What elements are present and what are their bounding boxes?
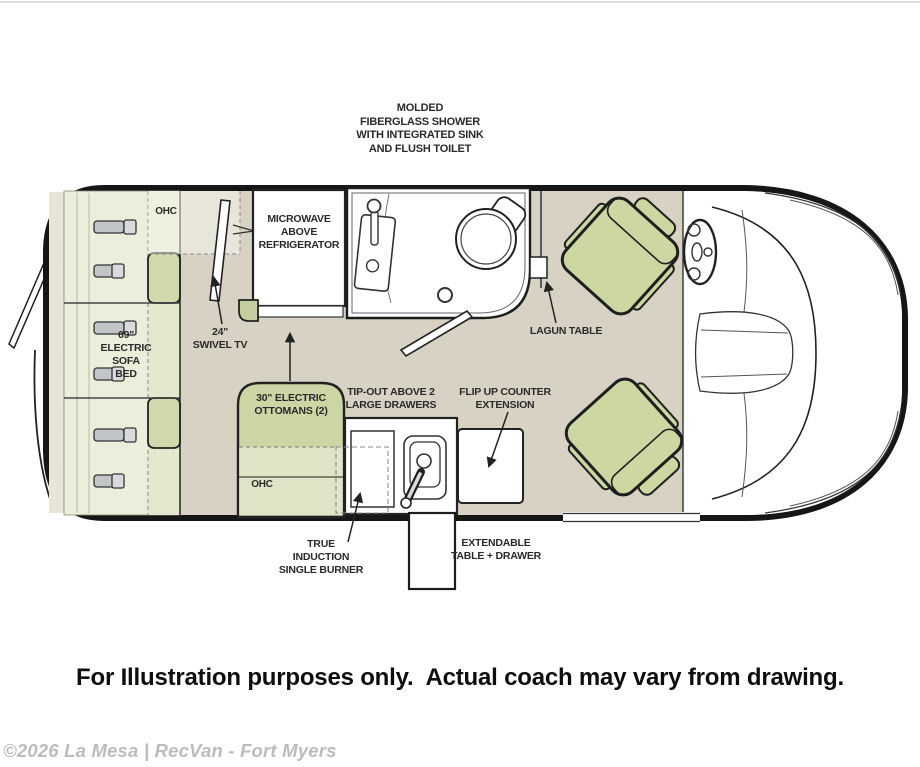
sofa-armrest-lower <box>148 398 180 448</box>
floorplan-page: MOLDED FIBERGLASS SHOWER WITH INTEGRATED… <box>0 0 920 767</box>
lagun-table <box>530 257 547 278</box>
sink-faucet-stem <box>371 211 378 245</box>
sofa-armrest-upper <box>148 253 180 303</box>
dealer-watermark: ©2026 La Mesa | RecVan - Fort Myers <box>3 740 337 762</box>
label-ohc-bottom: OHC <box>244 479 280 491</box>
fridge-ledge <box>257 306 343 317</box>
disclaimer-text: For Illustration purposes only. Actual c… <box>0 664 920 692</box>
hood-shape <box>696 312 793 394</box>
label-tip-out: TIP-OUT ABOVE 2 LARGE DRAWERS <box>342 386 440 412</box>
label-ottomans: 30" ELECTRIC OTTOMANS (2) <box>241 392 341 418</box>
label-lagun-table: LAGUN TABLE <box>526 325 606 338</box>
label-swivel-tv: 24" SWIVEL TV <box>178 326 262 352</box>
flip-up-counter-extension <box>458 429 523 503</box>
label-flip-up: FLIP UP COUNTER EXTENSION <box>456 386 554 412</box>
label-induction: TRUE INDUCTION SINGLE BURNER <box>268 538 374 577</box>
label-sofa-bed: 69" ELECTRIC SOFA BED <box>88 329 164 381</box>
label-microwave: MICROWAVE ABOVE REFRIGERATOR <box>256 213 342 252</box>
label-shower-note: MOLDED FIBERGLASS SHOWER WITH INTEGRATED… <box>330 102 510 157</box>
counter-corner-cap <box>239 300 258 321</box>
toilet-bowl <box>456 209 516 269</box>
label-extendable: EXTENDABLE TABLE + DRAWER <box>438 537 554 563</box>
sink-faucet-head <box>368 200 381 213</box>
kitchen-faucet-base <box>401 498 411 508</box>
steering-wheel <box>684 220 716 284</box>
label-ohc-top: OHC <box>148 206 184 218</box>
shower-drain <box>438 288 452 302</box>
